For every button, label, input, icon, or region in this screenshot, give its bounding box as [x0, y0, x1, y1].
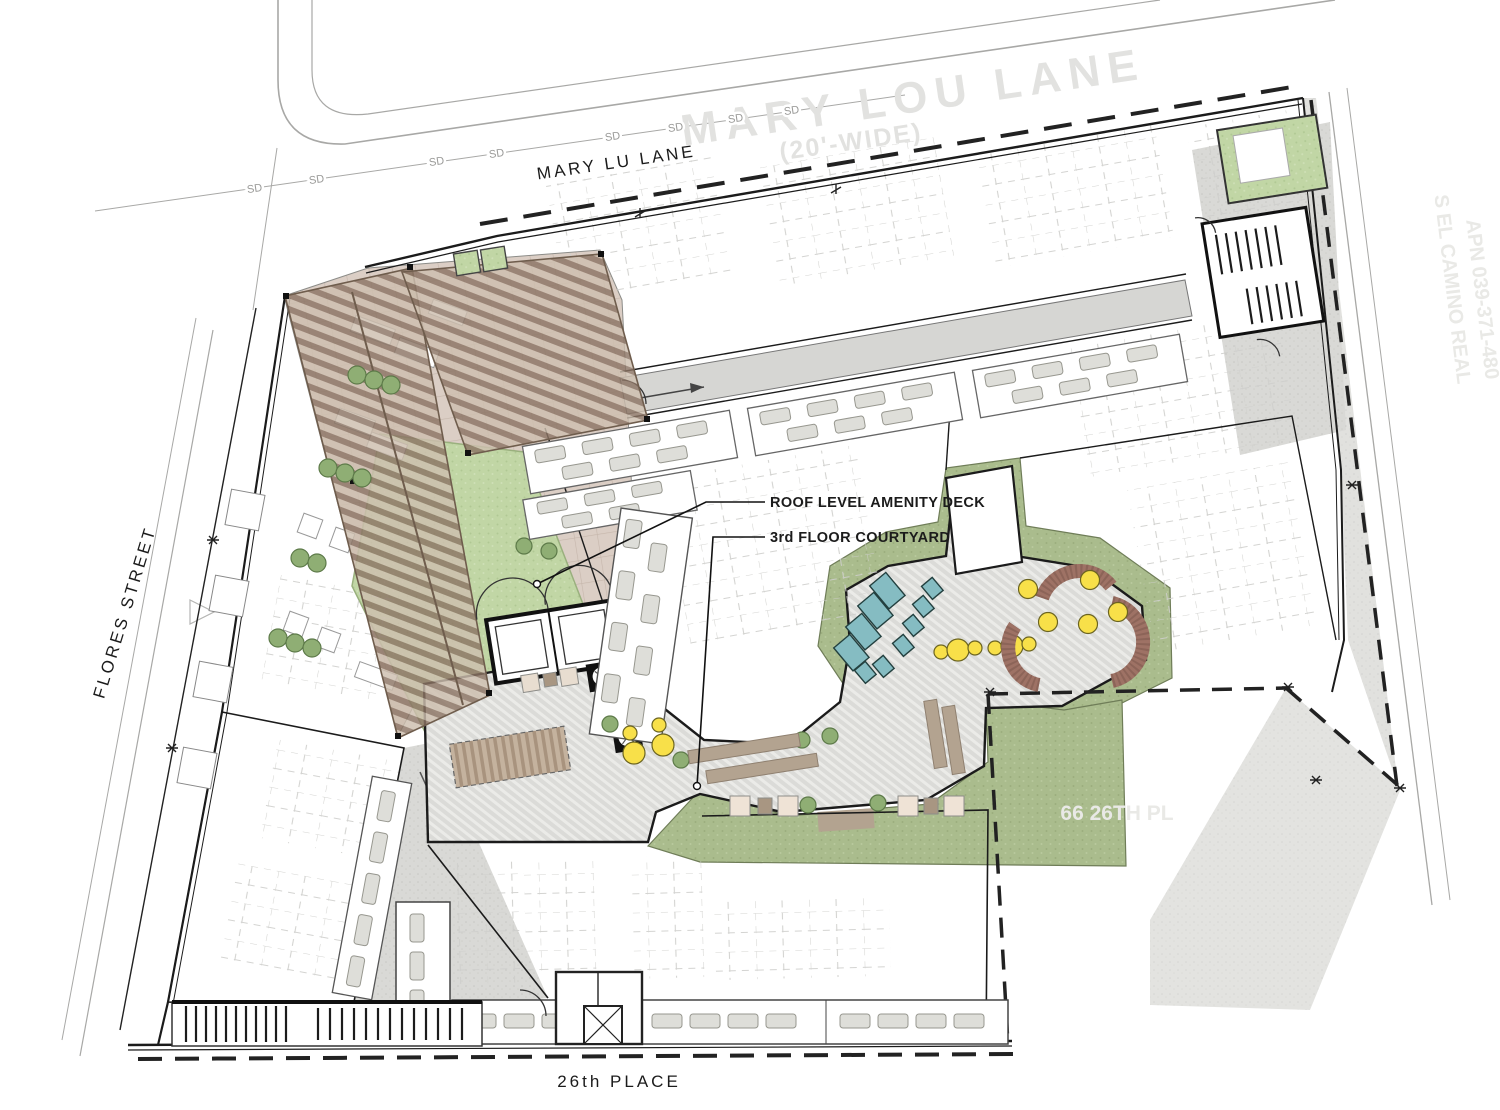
svg-text:SD: SD — [604, 130, 621, 144]
site-plan-canvas: MARY LOU LANE (20'-WIDE) MARY LU LANE FL… — [0, 0, 1500, 1110]
svg-text:SD: SD — [667, 121, 684, 135]
northeast-green-planter — [1217, 115, 1327, 204]
annotation-courtyard: 3rd FLOOR COURTYARD — [770, 530, 950, 546]
svg-text:SD: SD — [246, 182, 263, 196]
svg-text:SD: SD — [727, 112, 744, 126]
southeast-concrete-corner — [1150, 688, 1401, 1010]
neighbor-south-parcel: 66 26TH PL — [1060, 802, 1173, 825]
annotation-roof-deck: ROOF LEVEL AMENITY DECK — [770, 495, 985, 511]
street-label-26th-place: 26th PLACE — [557, 1072, 681, 1091]
svg-text:SD: SD — [428, 155, 445, 169]
site-plan-drawing: MARY LOU LANE (20'-WIDE) MARY LU LANE FL… — [0, 0, 1500, 1110]
svg-text:SD: SD — [783, 104, 800, 118]
planter-step — [817, 808, 874, 832]
svg-text:SD: SD — [308, 173, 325, 187]
bridge-corridor — [946, 466, 1022, 574]
svg-text:SD: SD — [488, 147, 505, 161]
